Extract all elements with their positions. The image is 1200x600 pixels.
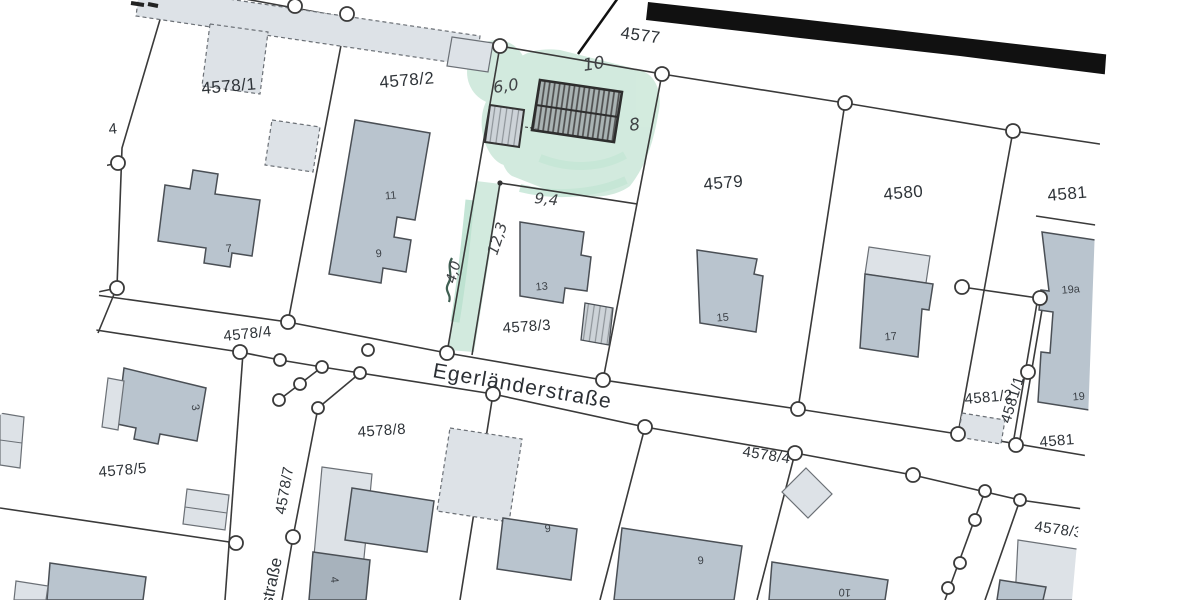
building-house-13	[520, 222, 591, 303]
parcel-label-4580: 4580	[883, 182, 924, 204]
annotation-6-0: 6,0	[492, 75, 520, 97]
house-number-15: 15	[716, 312, 729, 325]
boundary-point	[955, 280, 969, 294]
annotation-10: 10	[582, 53, 607, 76]
boundary-point	[316, 361, 328, 373]
building-sheds-left-edge	[0, 413, 24, 468]
boundary-point	[294, 378, 306, 390]
boundary-point	[340, 7, 354, 21]
building-shed-4578-1	[265, 120, 320, 172]
parcel-label-4581-top: 4581	[1047, 183, 1088, 205]
cadastral-map-scan: 4577 4578/1 4578/2 4579 4580 4581 4578/3…	[0, 0, 1200, 600]
boundary-point	[655, 67, 669, 81]
building-planned-4578-8	[437, 428, 522, 522]
boundary-point	[354, 367, 366, 379]
house-number-13: 13	[535, 281, 548, 294]
parcel-label-fragment-left: 4	[108, 120, 118, 138]
parcel-label-4578-8: 4578/8	[357, 421, 406, 441]
house-number-9-upper: 9	[375, 248, 382, 260]
boundary-point	[906, 468, 920, 482]
house-number-9-southwest: 9	[544, 523, 551, 535]
boundary-point	[596, 373, 610, 387]
building-garage-hatched	[485, 105, 524, 147]
house-number-19a: 19a	[1061, 283, 1081, 297]
boundary-point	[951, 427, 965, 441]
house-number-11: 11	[385, 190, 397, 203]
building-house-9-southwest	[497, 518, 577, 580]
boundary-point	[233, 345, 247, 359]
parcel-label-4581-bottom: 4581	[1039, 431, 1075, 451]
building-garage-13	[581, 303, 613, 345]
boundary-point	[1014, 494, 1026, 506]
house-number-4: 4	[328, 576, 340, 583]
boundary-point	[1009, 438, 1023, 452]
pencil-point	[497, 180, 502, 185]
boundary-point	[493, 39, 507, 53]
house-number-10: 10	[838, 586, 851, 599]
boundary-point	[1021, 365, 1035, 379]
building-shed-top	[447, 37, 493, 72]
boundary-point	[838, 96, 852, 110]
boundary-point	[362, 344, 374, 356]
boundary-point	[954, 557, 966, 569]
boundary-point	[969, 514, 981, 526]
boundary-point	[1006, 124, 1020, 138]
house-number-19: 19	[1072, 391, 1085, 404]
annotation-9-4: 9,4	[534, 189, 560, 209]
house-number-7: 7	[225, 243, 232, 255]
cadastral-map: 4577 4578/1 4578/2 4579 4580 4581 4578/3…	[0, 0, 1200, 600]
house-number-17: 17	[884, 331, 897, 344]
boundary-point	[979, 485, 991, 497]
boundary-point	[312, 402, 324, 414]
boundary-point	[638, 420, 652, 434]
building-sheds-4578-5	[183, 489, 229, 530]
boundary-point	[110, 281, 124, 295]
house-number-9-southeast: 9	[697, 555, 704, 567]
boundary-point	[281, 315, 295, 329]
building-house-15	[697, 250, 763, 332]
boundary-point	[791, 402, 805, 416]
parcel-label-4578-3: 4578/3	[502, 317, 551, 337]
boundary-point	[229, 536, 243, 550]
boundary-point	[440, 346, 454, 360]
boundary-point	[288, 0, 302, 13]
parcel-label-4579: 4579	[703, 172, 744, 194]
boundary-point	[286, 530, 300, 544]
boundary-point	[111, 156, 125, 170]
boundary-point	[1033, 291, 1047, 305]
boundary-point	[274, 354, 286, 366]
boundary-point	[273, 394, 285, 406]
boundary-point	[942, 582, 954, 594]
